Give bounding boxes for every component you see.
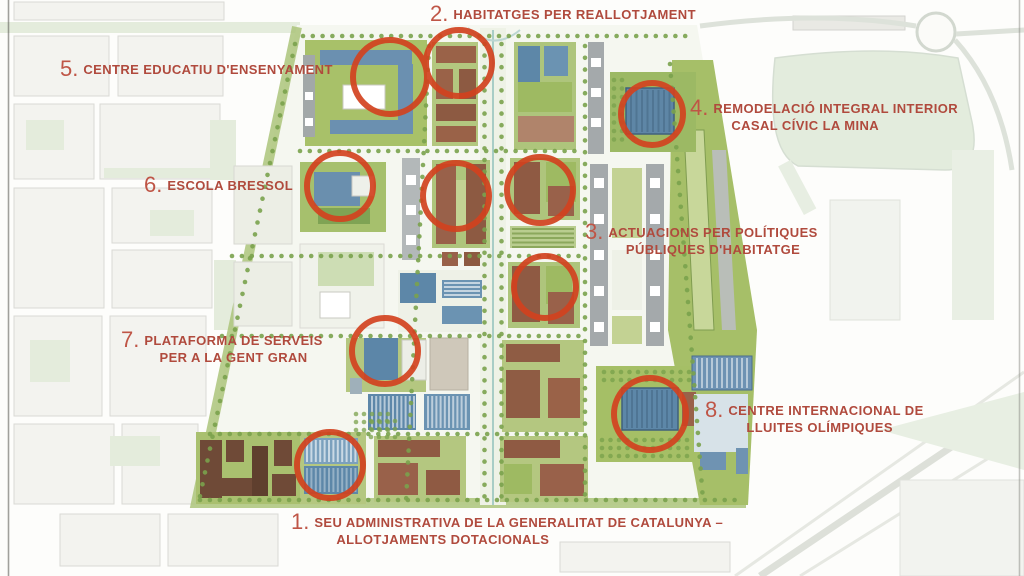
building-stripe [375,396,377,428]
tree-dot [422,139,427,144]
tree-dot [651,438,656,443]
tree-dot [278,113,283,118]
tree-dot [685,438,690,443]
building-stripe [701,358,703,388]
tree-dot [200,482,205,487]
tree-dot [499,483,504,488]
tree-dot [515,432,520,437]
tree-dot [583,280,588,285]
tree-dot [692,383,697,388]
tree-dot [205,458,210,463]
building-stripe [341,468,343,492]
tree-dot [642,438,647,443]
tree-dot [617,446,622,451]
tree-dot [499,227,504,232]
tree-dot [477,334,482,339]
tree-dot [675,157,680,162]
building-stripe [646,390,648,428]
tree-dot [406,432,411,437]
tree-dot [583,351,588,356]
tree-dot [659,454,664,459]
tree-dot [565,34,570,39]
tree-dot [482,436,487,441]
tree-dot [455,498,460,503]
tree-dot [377,435,382,440]
tree-dot [499,459,504,464]
tree-dot [620,86,625,91]
building-stripe [661,390,663,428]
tree-dot [487,334,492,339]
tree-dot [366,498,371,503]
building-stripe [636,90,638,132]
tree-dot [600,438,605,443]
tree-dot [499,274,504,279]
building-stripe [310,440,312,462]
tree-dot [208,446,213,451]
tree-dot [583,362,588,367]
plan-screenshot: 1. SEU ADMINISTRATIVA DE LA GENERALITAT … [0,0,1024,576]
building-stripe [337,440,339,462]
tree-dot [583,209,588,214]
tree-dot [685,454,690,459]
tree-dot [482,459,487,464]
tree-dot [507,254,512,259]
tree-dot [329,334,334,339]
block-row4-brown [502,340,584,432]
tree-dot [687,370,692,375]
tree-dot [311,34,316,39]
building-stripe [413,396,415,428]
tree-dot [465,432,470,437]
tree-dot [674,145,679,150]
tree-dot [409,389,414,394]
tree-dot [428,34,433,39]
tree-dot [515,498,520,503]
tree-dot [585,34,590,39]
building-stripe [448,396,450,428]
tree-dot [651,454,656,459]
tree-dot [634,34,639,39]
tree-dot [583,115,588,120]
tree-dot [482,111,487,116]
tree-dot [425,149,430,154]
tree-dot [339,334,344,339]
tree-dot [260,196,265,201]
tree-dot [617,454,622,459]
tree-dot [320,34,325,39]
tree-dot [410,377,415,382]
tree-dot [673,498,678,503]
tree-dot [619,370,624,375]
tree-dot [228,432,233,437]
tree-dot [386,498,391,503]
tree-dot [499,401,504,406]
tree-dot [527,334,532,339]
tree-dot [435,149,440,154]
tree-dot [482,135,487,140]
tree-dot [275,125,280,130]
tree-dot [499,181,504,186]
building-stripe [696,358,698,388]
tree-dot [227,498,232,503]
tree-dot [562,149,567,154]
building-stripe [647,90,649,132]
tree-dot [297,498,302,503]
tree-dot [499,146,504,151]
building-stripe [341,440,343,462]
tree-dot [594,498,599,503]
tree-dot [499,169,504,174]
tree-dot [482,401,487,406]
tree-dot [583,126,588,131]
tree-dot [499,471,504,476]
tree-dot [634,438,639,443]
tree-dot [556,34,561,39]
tree-dot [602,378,607,383]
tree-dot [583,339,588,344]
tree-dot [703,498,708,503]
tree-dot [482,413,487,418]
tree-dot [257,498,262,503]
building-stripe [461,396,463,428]
tree-dot [482,251,487,256]
tree-dot [688,335,693,340]
tree-dot [435,432,440,437]
tree-dot [668,62,673,67]
building-stripe [736,358,738,388]
building-stripe [741,358,743,388]
tree-dot [574,432,579,437]
tree-dot [482,378,487,383]
tree-dot [425,498,430,503]
tree-dot [633,498,638,503]
tree-dot [698,466,703,471]
tree-dot [583,56,588,61]
tree-dot [620,78,625,83]
tree-dot [386,412,391,417]
tree-dot [623,498,628,503]
tree-dot [683,498,688,503]
building-stripe [346,468,348,492]
building-stripe [396,396,398,428]
tree-dot [269,254,274,259]
annotation-3: 3. ACTUACIONS PER POLÍTIQUESPÚBLIQUES D'… [585,221,818,258]
tree-dot [482,285,487,290]
tree-dot [378,412,383,417]
tree-dot [245,268,250,273]
tree-dot [415,270,420,275]
tree-dot [676,169,681,174]
tree-dot [583,492,588,497]
tree-dot [482,367,487,372]
tree-dot [465,498,470,503]
tree-dot [393,435,398,440]
building-stripe [324,440,326,462]
tree-dot [362,420,367,425]
building-stripe [650,322,660,332]
tree-dot [605,34,610,39]
tree-dot [523,149,528,154]
tree-dot [438,254,443,259]
tree-dot [414,294,419,299]
tree-dot [250,244,255,249]
tree-dot [354,412,359,417]
tree-dot [612,112,617,117]
tree-dot [612,78,617,83]
building-stripe [444,290,480,292]
tree-dot [409,401,414,406]
tree-dot [218,399,223,404]
annotation-1-number: 1. [291,511,309,533]
tree-dot [230,254,235,259]
tree-dot [659,438,664,443]
tree-dot [694,407,699,412]
tree-dot [455,149,460,154]
tree-dot [499,135,504,140]
tree-dot [683,264,688,269]
tree-dot [280,101,285,106]
building-stripe [594,178,604,188]
tree-dot [293,42,298,47]
block-gent-gran [346,338,468,394]
building-stripe [332,440,334,462]
building-stripe [332,468,334,492]
tree-dot [423,127,428,132]
tree-dot [417,246,422,251]
tree-dot [405,472,410,477]
tree-dot [685,446,690,451]
building-stripe [431,396,433,428]
tree-dot [418,34,423,39]
tree-dot [388,254,393,259]
tree-dot [487,254,492,259]
block-centre-educatiu [303,40,427,146]
tree-dot [420,175,425,180]
building-stripe [456,396,458,428]
building-stripe [315,468,317,492]
tree-dot [608,454,613,459]
tree-dot [678,193,683,198]
building-stripe [328,440,330,462]
tree-dot [356,498,361,503]
tree-dot [354,420,359,425]
building-stripe [671,390,673,428]
tree-dot [636,370,641,375]
tree-dot [369,34,374,39]
tree-dot [642,454,647,459]
building-stripe [656,390,658,428]
tree-dot [713,498,718,503]
tree-dot [643,498,648,503]
tree-dot [277,432,282,437]
tree-dot [218,498,223,503]
building-stripe [641,390,643,428]
tree-dot [600,446,605,451]
tree-dot [583,150,588,155]
tree-dot [534,432,539,437]
tree-dot [612,120,617,125]
tree-dot [370,412,375,417]
tree-dot [602,370,607,375]
tree-dot [696,431,701,436]
tree-dot [583,103,588,108]
tree-dot [499,204,504,209]
building-stripe [319,468,321,492]
tree-dot [482,320,487,325]
tree-dot [385,419,390,424]
tree-dot [676,446,681,451]
building-stripe [706,358,708,388]
tree-dot [447,334,452,339]
tree-dot [377,419,382,424]
tree-dot [317,149,322,154]
tree-dot [417,234,422,239]
building-stripe [440,396,442,428]
tree-dot [499,413,504,418]
tree-dot [583,398,588,403]
tree-dot [482,100,487,105]
tree-dot [732,498,737,503]
tree-dot [499,494,504,499]
tree-dot [418,254,423,259]
building-stripe [392,396,394,428]
tree-dot [517,334,522,339]
tree-dot [564,498,569,503]
tree-dot [575,34,580,39]
tree-dot [464,149,469,154]
tree-dot [398,254,403,259]
tree-dot [330,34,335,39]
tree-dot [614,34,619,39]
tree-dot [406,460,411,465]
tree-dot [482,158,487,163]
tree-dot [499,123,504,128]
tree-dot [485,432,490,437]
building-stripe [444,396,446,428]
tree-dot [474,149,479,154]
building-stripe [444,286,480,288]
building-stripe [465,396,467,428]
building-stripe [716,358,718,388]
tree-dot [505,498,510,503]
tree-dot [684,276,689,281]
annotation-2: 2. HABITATGES PER REALLOTJAMENT [430,3,696,25]
tree-dot [362,412,367,417]
tree-dot [583,91,588,96]
building-stripe [319,440,321,462]
annotation-4-number: 4. [690,97,708,119]
annotation-8: 8. CENTRE INTERNACIONAL DELLUITES OLÍMPI… [705,399,924,436]
tree-dot [583,315,588,320]
tree-dot [583,268,588,273]
building-stripe [626,390,628,428]
tree-dot [283,89,288,94]
tree-dot [307,498,312,503]
tree-dot [378,334,383,339]
tree-dot [482,227,487,232]
tree-dot [396,149,401,154]
tree-dot [407,436,412,441]
building-stripe [444,282,480,284]
annotation-2-number: 2. [430,3,448,25]
tree-dot [377,427,382,432]
tree-dot [277,498,282,503]
tree-dot [259,254,264,259]
building-stripe [452,396,454,428]
tree-dot [504,149,509,154]
tree-dot [566,334,571,339]
tree-dot [423,115,428,120]
tree-dot [499,262,504,267]
tree-dot [235,315,240,320]
tree-dot [445,432,450,437]
building-stripe [669,90,671,132]
tree-dot [257,432,262,437]
tree-dot [608,446,613,451]
tree-dot [350,34,355,39]
tree-dot [543,149,548,154]
tree-dot [697,454,702,459]
tree-dot [687,312,692,317]
tree-dot [215,411,220,416]
tree-dot [697,443,702,448]
tree-dot [369,427,374,432]
tree-dot [583,44,588,49]
tree-dot [610,370,615,375]
tree-dot [475,498,480,503]
tree-dot [240,292,245,297]
tree-dot [583,421,588,426]
building-stripe [512,242,574,244]
tree-dot [668,454,673,459]
building-stripe [427,396,429,428]
building-stripe [641,90,643,132]
tree-dot [208,432,213,437]
tree-dot [612,103,617,108]
tree-dot [408,413,413,418]
tree-dot [362,428,367,433]
tree-dot [457,334,462,339]
tree-dot [546,334,551,339]
tree-dot [497,34,502,39]
building-stripe [711,358,713,388]
tree-dot [499,448,504,453]
tree-dot [198,498,203,503]
tree-dot [448,254,453,259]
tree-dot [408,425,413,430]
tree-dot [676,454,681,459]
tree-dot [670,97,675,102]
slab-left [402,158,420,260]
building-stripe [435,396,437,428]
tree-dot [482,343,487,348]
tree-dot [482,262,487,267]
tree-dot [497,254,502,259]
tree-dot [405,484,410,489]
tree-dot [686,300,691,305]
tree-dot [499,193,504,198]
tree-dot [340,34,345,39]
tree-dot [689,347,694,352]
annotation-6: 6. ESCOLA BRESSOL [144,174,293,196]
tree-dot [477,254,482,259]
tree-dot [253,232,258,237]
tree-dot [482,483,487,488]
tree-dot [378,254,383,259]
tree-dot [544,432,549,437]
tree-dot [499,88,504,93]
tree-dot [255,220,260,225]
